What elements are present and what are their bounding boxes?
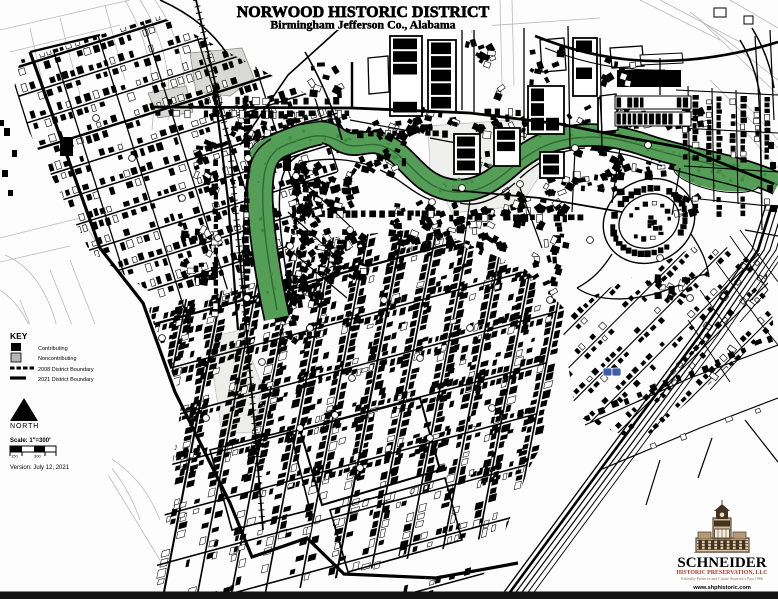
svg-text:Ethically Preserve and Curate: Ethically Preserve and Curate America’s … [681, 576, 763, 581]
svg-text:Birmingham Jefferson Co., Alab: Birmingham Jefferson Co., Alabama [270, 18, 455, 32]
svg-text:NORTH: NORTH [10, 423, 39, 430]
svg-text:Version: July 12, 2021: Version: July 12, 2021 [10, 465, 70, 471]
svg-text:KEY: KEY [10, 331, 28, 341]
svg-text:Contributing: Contributing [38, 346, 68, 352]
svg-text:2008 District Boundary: 2008 District Boundary [38, 367, 94, 373]
svg-text:www.shphistoric.com: www.shphistoric.com [692, 585, 751, 591]
svg-text:2021 District Boundary: 2021 District Boundary [38, 377, 94, 383]
svg-text:SCHNEIDER: SCHNEIDER [677, 555, 766, 571]
svg-text:Scale: 1″=300′: Scale: 1″=300′ [10, 438, 51, 444]
svg-text:150: 150 [11, 454, 18, 459]
svg-text:Noncontributing: Noncontributing [38, 356, 77, 362]
svg-text:300: 300 [34, 454, 41, 459]
